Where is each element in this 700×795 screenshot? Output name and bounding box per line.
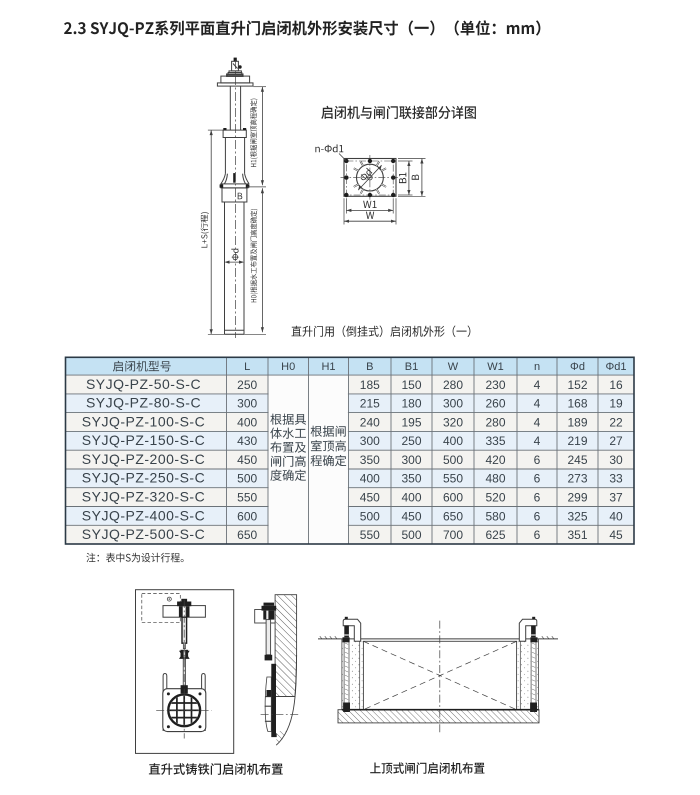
svg-text:SYJQ-PZ-250-S-C: SYJQ-PZ-250-S-C — [82, 470, 205, 486]
svg-text:SYJQ-PZ-50-S-C: SYJQ-PZ-50-S-C — [86, 376, 201, 392]
svg-text:700: 700 — [443, 528, 463, 542]
svg-text:SYJQ-PZ-320-S-C: SYJQ-PZ-320-S-C — [82, 489, 205, 505]
svg-text:185: 185 — [360, 378, 380, 392]
svg-text:420: 420 — [485, 453, 505, 467]
svg-text:152: 152 — [567, 378, 587, 392]
svg-text:19: 19 — [609, 397, 623, 411]
svg-text:4: 4 — [534, 397, 541, 411]
svg-text:B: B — [366, 361, 373, 373]
svg-text:195: 195 — [401, 415, 421, 429]
svg-text:4: 4 — [534, 415, 541, 429]
svg-text:45: 45 — [609, 528, 623, 542]
svg-text:W1: W1 — [487, 361, 504, 373]
svg-text:SYJQ-PZ-200-S-C: SYJQ-PZ-200-S-C — [82, 451, 205, 467]
svg-text:280: 280 — [485, 415, 505, 429]
svg-text:650: 650 — [443, 509, 463, 523]
svg-text:280: 280 — [443, 378, 463, 392]
svg-text:300: 300 — [401, 453, 421, 467]
svg-text:600: 600 — [443, 491, 463, 505]
svg-text:SYJQ-PZ-100-S-C: SYJQ-PZ-100-S-C — [82, 413, 205, 429]
svg-text:351: 351 — [567, 528, 587, 542]
svg-text:4: 4 — [534, 434, 541, 448]
svg-text:B1: B1 — [405, 361, 418, 373]
svg-text:500: 500 — [237, 472, 257, 486]
svg-text:40: 40 — [609, 509, 623, 523]
svg-text:400: 400 — [237, 415, 257, 429]
svg-text:189: 189 — [567, 415, 587, 429]
svg-text:450: 450 — [360, 491, 380, 505]
svg-text:480: 480 — [485, 472, 505, 486]
svg-text:230: 230 — [485, 378, 505, 392]
svg-text:219: 219 — [567, 434, 587, 448]
svg-text:350: 350 — [401, 472, 421, 486]
svg-text:37: 37 — [609, 491, 623, 505]
svg-text:650: 650 — [237, 528, 257, 542]
svg-text:6: 6 — [534, 453, 541, 467]
svg-text:600: 600 — [237, 509, 257, 523]
svg-text:SYJQ-PZ-80-S-C: SYJQ-PZ-80-S-C — [86, 395, 201, 411]
svg-text:H1: H1 — [321, 361, 335, 373]
svg-text:625: 625 — [485, 528, 505, 542]
svg-text:33: 33 — [609, 472, 623, 486]
svg-text:580: 580 — [485, 509, 505, 523]
svg-text:400: 400 — [443, 434, 463, 448]
svg-text:6: 6 — [534, 472, 541, 486]
svg-text:245: 245 — [567, 453, 587, 467]
svg-text:400: 400 — [360, 472, 380, 486]
svg-text:350: 350 — [360, 453, 380, 467]
svg-text:215: 215 — [360, 397, 380, 411]
svg-text:260: 260 — [485, 397, 505, 411]
svg-text:273: 273 — [567, 472, 587, 486]
svg-text:27: 27 — [609, 434, 623, 448]
svg-text:SYJQ-PZ-150-S-C: SYJQ-PZ-150-S-C — [82, 432, 205, 448]
svg-text:4: 4 — [534, 378, 541, 392]
svg-text:W: W — [448, 361, 459, 373]
svg-text:168: 168 — [567, 397, 587, 411]
svg-text:16: 16 — [609, 378, 623, 392]
svg-text:300: 300 — [237, 397, 257, 411]
svg-text:400: 400 — [401, 491, 421, 505]
svg-text:n: n — [534, 361, 540, 373]
svg-text:550: 550 — [237, 491, 257, 505]
svg-text:250: 250 — [237, 378, 257, 392]
svg-text:520: 520 — [485, 491, 505, 505]
svg-text:30: 30 — [609, 453, 623, 467]
svg-text:250: 250 — [401, 434, 421, 448]
svg-text:6: 6 — [534, 509, 541, 523]
svg-text:500: 500 — [401, 528, 421, 542]
svg-text:500: 500 — [443, 453, 463, 467]
svg-text:430: 430 — [237, 434, 257, 448]
svg-text:SYJQ-PZ-400-S-C: SYJQ-PZ-400-S-C — [82, 507, 205, 523]
svg-text:150: 150 — [401, 378, 421, 392]
svg-text:320: 320 — [443, 415, 463, 429]
svg-text:300: 300 — [443, 397, 463, 411]
svg-text:22: 22 — [609, 415, 623, 429]
svg-text:240: 240 — [360, 415, 380, 429]
svg-text:SYJQ-PZ-500-S-C: SYJQ-PZ-500-S-C — [82, 526, 205, 542]
svg-text:H0: H0 — [281, 361, 295, 373]
svg-text:L: L — [244, 361, 250, 373]
svg-text:450: 450 — [401, 509, 421, 523]
svg-text:6: 6 — [534, 491, 541, 505]
svg-text:6: 6 — [534, 528, 541, 542]
svg-text:550: 550 — [443, 472, 463, 486]
svg-text:335: 335 — [485, 434, 505, 448]
svg-text:325: 325 — [567, 509, 587, 523]
svg-text:300: 300 — [360, 434, 380, 448]
svg-text:450: 450 — [237, 453, 257, 467]
svg-text:550: 550 — [360, 528, 380, 542]
svg-text:Φd: Φd — [570, 361, 585, 373]
svg-text:180: 180 — [401, 397, 421, 411]
svg-text:299: 299 — [567, 491, 587, 505]
svg-text:Φd1: Φd1 — [605, 361, 626, 373]
svg-text:500: 500 — [360, 509, 380, 523]
